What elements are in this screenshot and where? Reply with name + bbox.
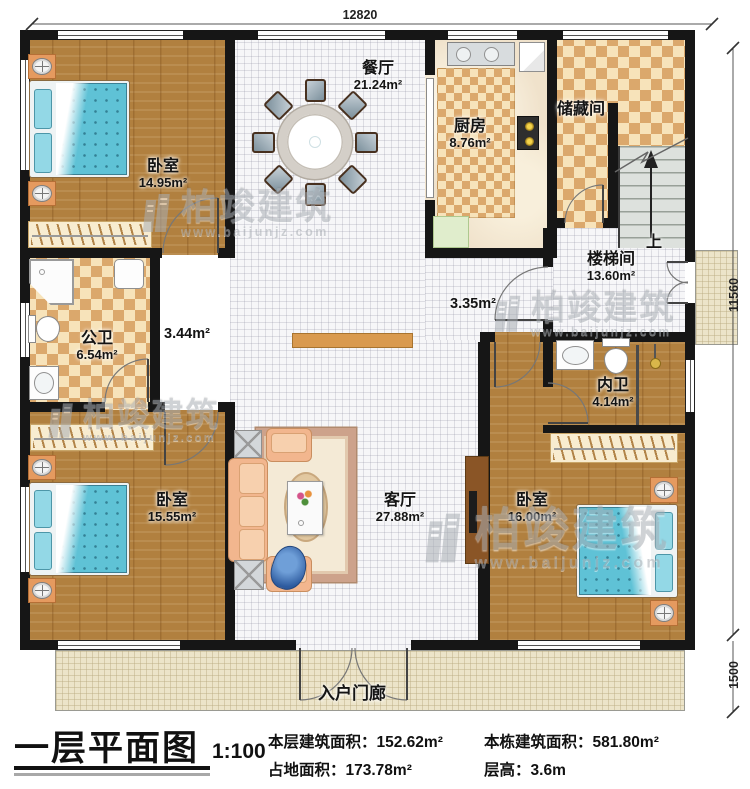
burner	[525, 122, 534, 131]
room-area: 14.95m²	[139, 176, 187, 191]
sink-basin	[484, 47, 499, 62]
dining-chair	[305, 79, 326, 102]
lamp-icon	[654, 481, 674, 499]
room-area: 21.24m²	[354, 78, 402, 93]
info-label: 本栋建筑面积：	[484, 734, 593, 751]
info-value: 173.78m²	[346, 762, 412, 779]
window-top-storage	[563, 30, 668, 40]
room-label-stairwell: 楼梯间 13.60m²	[561, 251, 661, 284]
cushion	[239, 463, 265, 494]
room-label-bedroom-top-left: 卧室 14.95m²	[113, 158, 213, 191]
dining-chair	[305, 183, 326, 206]
info-label: 层高：	[484, 762, 531, 779]
armchair	[266, 428, 312, 462]
room-name: 卧室	[516, 492, 548, 510]
dining-chair	[355, 132, 378, 153]
wall-exterior-bottom-a	[20, 640, 58, 650]
room-label-bedroom-bottom-right: 卧室 16.00m²	[482, 492, 582, 525]
pillow	[655, 554, 673, 592]
wall-stairwell-left-a	[543, 228, 553, 267]
dining-table	[278, 105, 352, 179]
table-item	[298, 520, 304, 526]
room-label-public-bathroom: 公卫 6.54m²	[47, 330, 147, 363]
entrance-porch-label: 入户门廊	[282, 679, 422, 704]
room-area: 15.55m²	[148, 510, 196, 525]
dimension-porch-right: 1500	[727, 657, 741, 693]
info-label: 本层建筑面积：	[268, 734, 377, 751]
room-label-kitchen: 厨房 8.76m²	[420, 118, 520, 151]
nightstand	[28, 455, 56, 480]
room-name: 餐厅	[362, 60, 394, 78]
room-label-bedroom-bottom-left: 卧室 15.55m²	[122, 492, 222, 525]
info-value: 581.80m²	[593, 734, 659, 751]
room-area: 13.60m²	[587, 269, 635, 284]
room-area: 6.54m²	[76, 348, 117, 363]
info-footprint: 占地面积：173.78m²	[268, 758, 412, 780]
side-table	[234, 560, 264, 590]
nightstand	[650, 477, 678, 503]
info-value: 152.62m²	[377, 734, 443, 751]
room-name: 卧室	[156, 492, 188, 510]
wall-kitchen-bottom	[425, 248, 557, 258]
room-name: 储藏间	[557, 101, 605, 119]
cushion	[271, 433, 307, 453]
dimension-top: 12820	[330, 8, 390, 22]
wardrobe-top-left	[28, 221, 152, 248]
wall-bedroomTL-bottom-a	[20, 248, 162, 258]
hallway-bench	[292, 333, 413, 348]
pillow	[655, 512, 673, 550]
room-area: 4.14m²	[592, 395, 633, 410]
bed-sheet	[611, 507, 651, 595]
stove	[517, 116, 539, 150]
washer	[114, 259, 144, 289]
sink-basin	[456, 47, 471, 62]
bed-bottom-left	[29, 482, 130, 576]
wardrobe-rod	[34, 438, 150, 440]
info-storey-height: 层高：3.6m	[484, 758, 566, 780]
tv	[469, 491, 477, 533]
hallway-area-left: 3.44m²	[137, 326, 237, 342]
wall-exterior-right-a	[685, 30, 695, 262]
bath-counter	[556, 340, 594, 370]
bed-sheet	[56, 83, 96, 175]
wardrobe-bottom-left	[30, 424, 154, 451]
room-label-storage: 储藏间	[531, 101, 631, 119]
room-area: 27.88m²	[376, 510, 424, 525]
title-underline	[14, 766, 210, 770]
wall-bedroomTL-bottom-b	[218, 248, 235, 258]
wardrobe-rod	[32, 235, 148, 237]
wardrobe-bottom-right	[550, 433, 678, 463]
wall-bedroomBR-top-a	[480, 332, 495, 342]
wall-exterior-bottom-c	[411, 640, 518, 650]
room-area: 8.76m²	[449, 136, 490, 151]
room-name: 内卫	[597, 377, 629, 395]
wall-bedroomTL-right	[225, 30, 235, 258]
window-top-dining	[258, 30, 385, 40]
shower-drain	[39, 269, 45, 275]
pillow	[34, 490, 52, 528]
nightstand	[28, 181, 56, 206]
stairs-up-label: 上	[646, 228, 662, 252]
coffee-table	[287, 481, 323, 535]
bed-sheet	[56, 485, 96, 573]
side-table	[234, 430, 262, 458]
window-bottom-bedroomBR	[518, 640, 640, 650]
burner	[525, 137, 534, 146]
dimension-right: 11560	[727, 275, 741, 315]
info-floor-area: 本层建筑面积：152.62m²	[268, 730, 443, 752]
bath-sink	[562, 346, 589, 365]
toilet-tank	[28, 315, 36, 343]
wall-privatebath-bottom	[543, 425, 685, 433]
room-label-dining: 餐厅 21.24m²	[328, 60, 428, 93]
room-name: 公卫	[81, 330, 113, 348]
wall-exterior-bottom-b	[180, 640, 296, 650]
wall-mid-left-b	[148, 402, 165, 412]
room-area: 16.00m²	[508, 510, 556, 525]
bath-sink	[34, 372, 54, 394]
wall-exterior-right-c	[685, 412, 695, 650]
nightstand	[28, 578, 56, 603]
floor-plan-canvas: 柏竣建筑www.baijunjz.com 柏竣建筑www.baijunjz.co…	[0, 0, 750, 789]
room-label-living: 客厅 27.88m²	[350, 492, 450, 525]
flower-decor	[294, 488, 316, 508]
plan-scale: 1:100	[212, 740, 266, 764]
lamp-icon	[32, 185, 52, 202]
cushion	[239, 529, 265, 560]
lamp-icon	[654, 604, 674, 622]
wall-storage-stairs	[608, 103, 618, 228]
window-top-bedroomTL	[58, 30, 183, 40]
wall-mid-left-c	[218, 402, 235, 412]
sofa	[228, 458, 268, 562]
window-right-privatebath	[685, 360, 695, 412]
window-bottom-bedroomBL	[58, 640, 180, 650]
pillow	[34, 532, 52, 570]
lamp-icon	[32, 58, 52, 75]
room-name: 楼梯间	[587, 251, 635, 269]
info-label: 占地面积：	[268, 762, 346, 779]
wall-storage-bottom-a	[557, 218, 565, 228]
bed-bottom-right	[576, 504, 678, 598]
cushion	[239, 496, 265, 527]
bath-counter	[29, 366, 59, 400]
wardrobe-rod	[554, 448, 674, 450]
nightstand	[650, 600, 678, 626]
window-top-kitchen	[448, 30, 517, 40]
wall-kitchen-right	[547, 30, 557, 258]
hallway-area-right: 3.35m²	[423, 296, 523, 312]
wall-mid-left-a	[20, 402, 105, 412]
table-center	[309, 136, 321, 148]
info-building-area: 本栋建筑面积：581.80m²	[484, 730, 659, 752]
room-name: 厨房	[454, 118, 486, 136]
info-value: 3.6m	[531, 762, 566, 779]
shower-head	[650, 358, 661, 369]
pillow	[34, 133, 52, 173]
title-underline-2	[14, 773, 210, 776]
kitchen-sink	[447, 42, 515, 66]
refrigerator	[519, 42, 545, 72]
pillow	[34, 89, 52, 129]
lamp-icon	[32, 459, 52, 476]
kitchen-mat	[433, 216, 469, 248]
room-name: 客厅	[384, 492, 416, 510]
wall-privatebath-left	[543, 342, 553, 387]
wall-exterior-bottom-d	[640, 640, 695, 650]
toilet-tank	[602, 338, 630, 347]
lamp-icon	[32, 582, 52, 599]
nightstand	[28, 54, 56, 79]
plan-title: 一层平面图	[14, 720, 199, 771]
room-name: 卧室	[147, 158, 179, 176]
room-label-private-bathroom: 内卫 4.14m²	[563, 377, 663, 410]
dining-chair	[252, 132, 275, 153]
